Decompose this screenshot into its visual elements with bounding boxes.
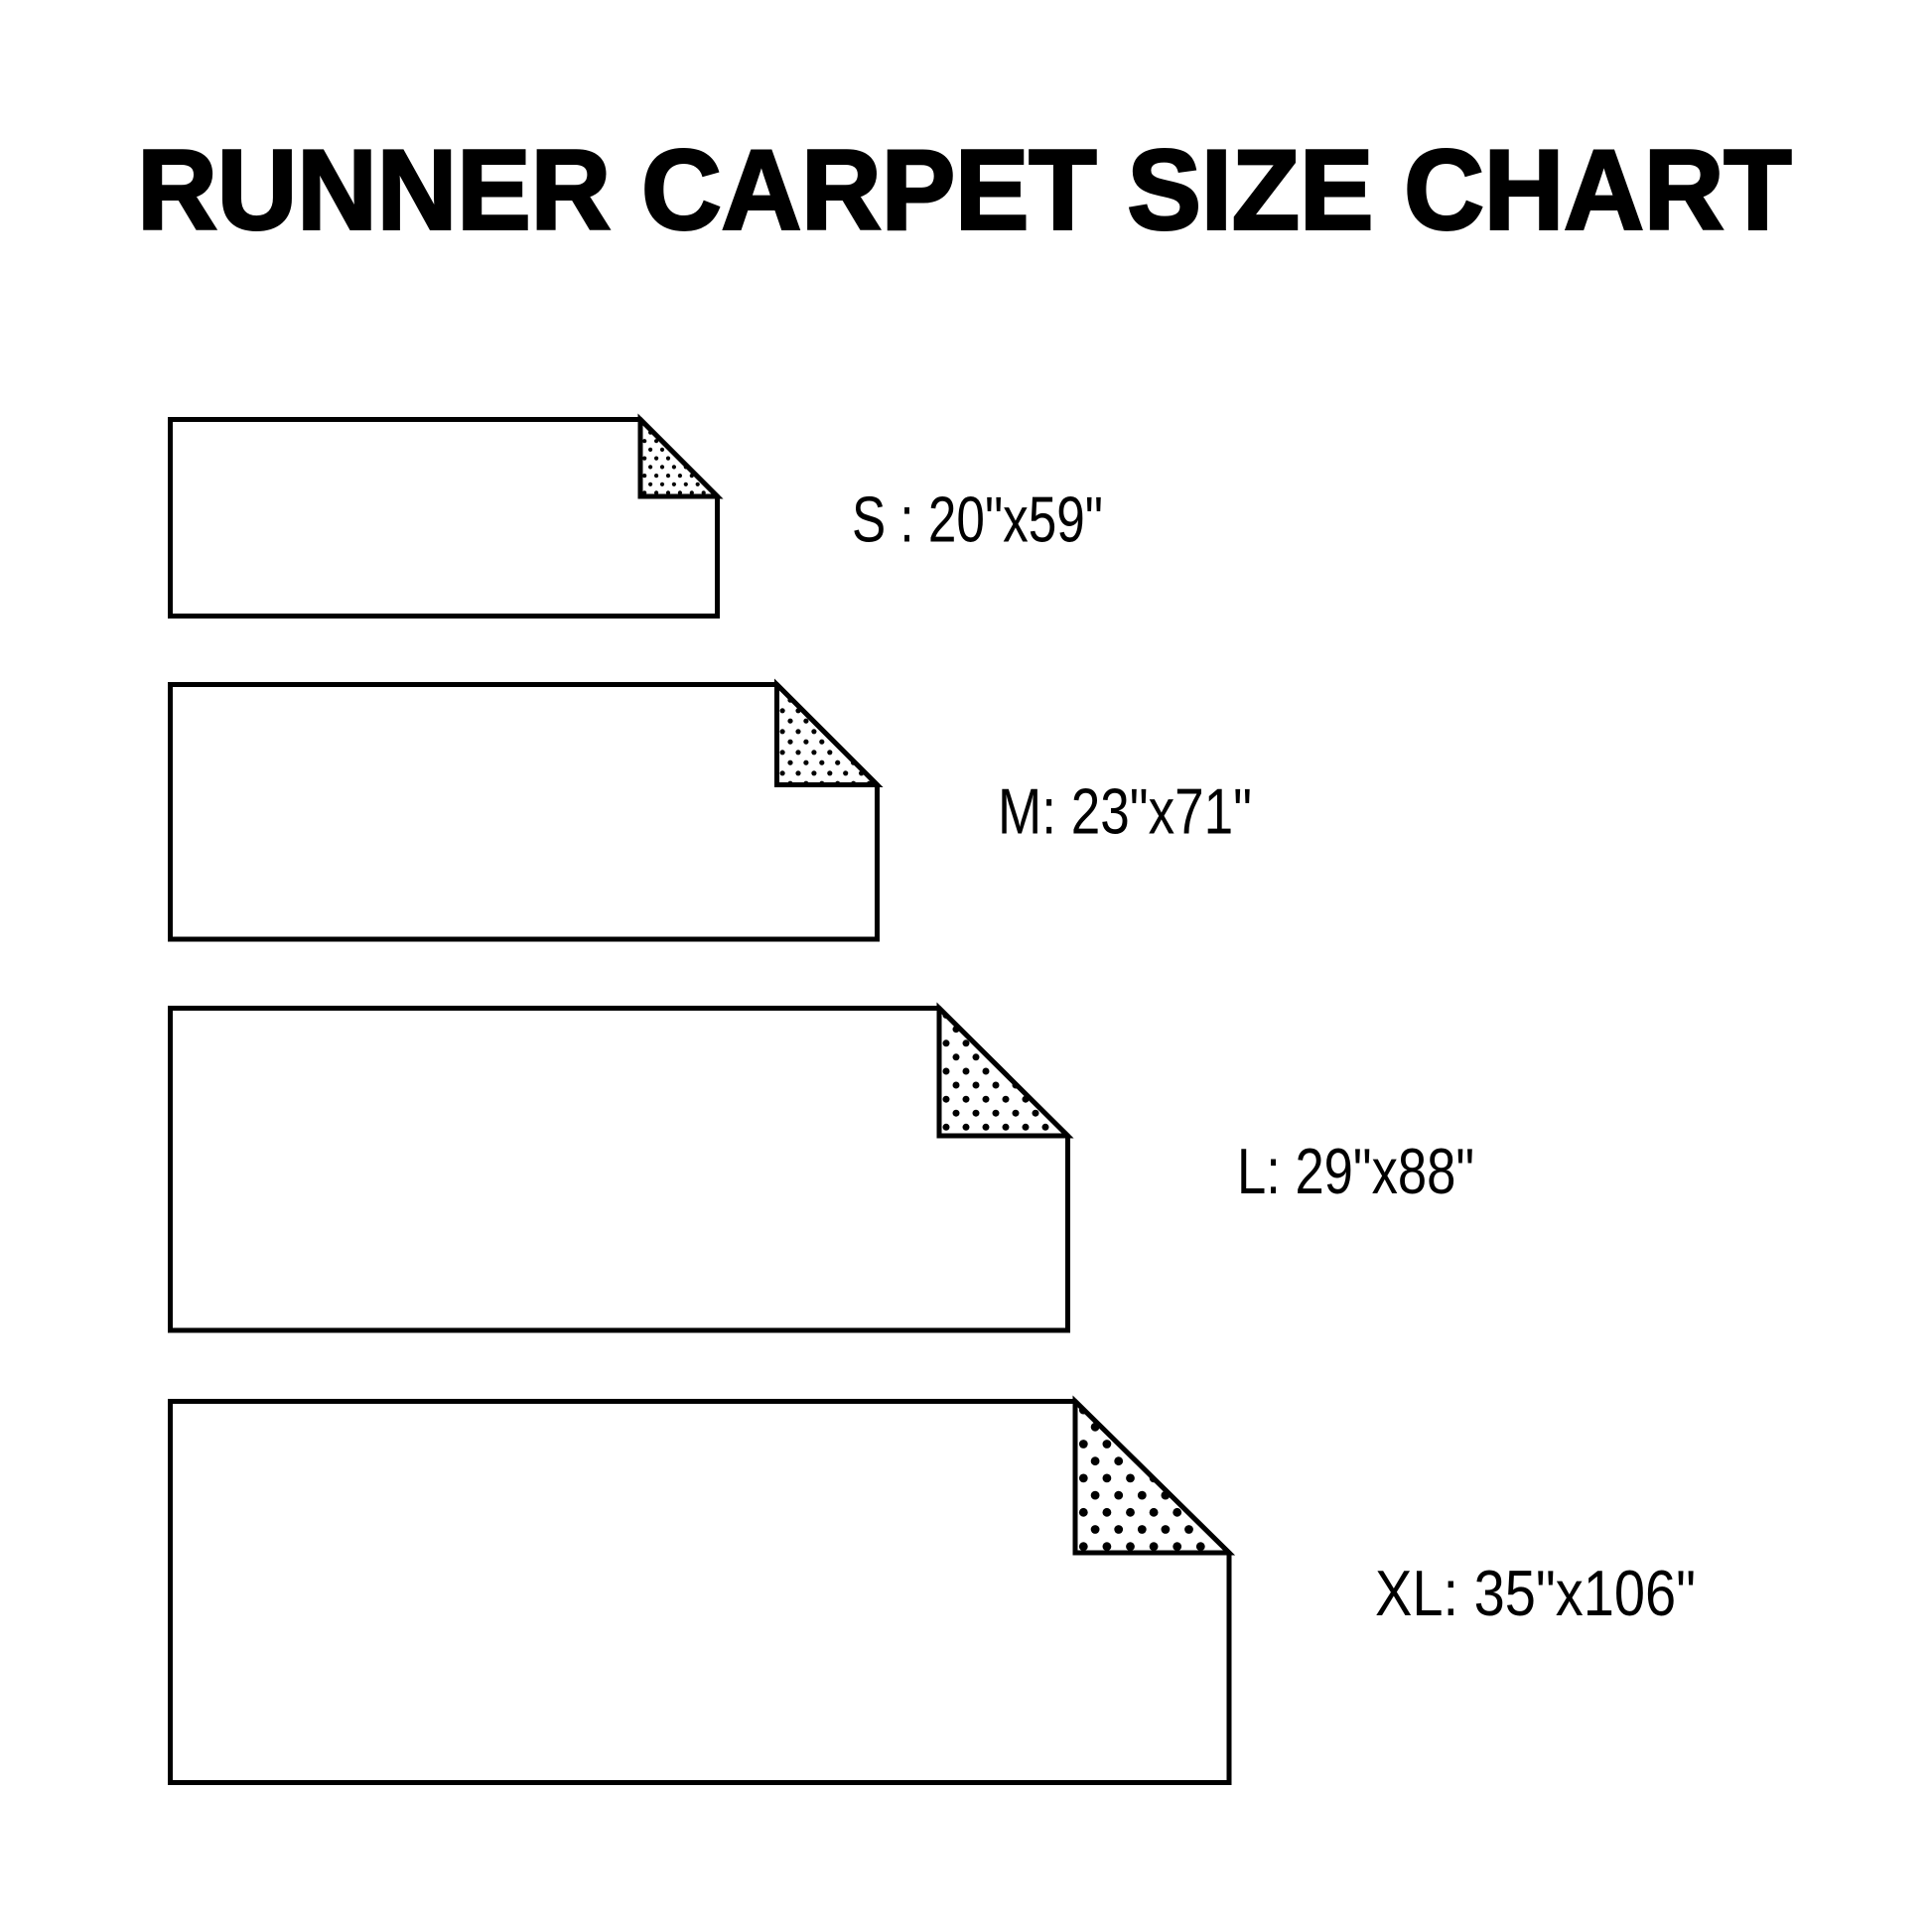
svg-text:RUNNER CARPET SIZE CHART: RUNNER CARPET SIZE CHART xyxy=(137,126,1791,252)
svg-text:M: 23"x71": M: 23"x71" xyxy=(998,776,1252,848)
svg-text:L: 29"x88": L: 29"x88" xyxy=(1237,1136,1474,1207)
svg-text:S : 20"x59": S : 20"x59" xyxy=(852,484,1103,556)
svg-text:XL: 35"x106": XL: 35"x106" xyxy=(1375,1558,1696,1629)
